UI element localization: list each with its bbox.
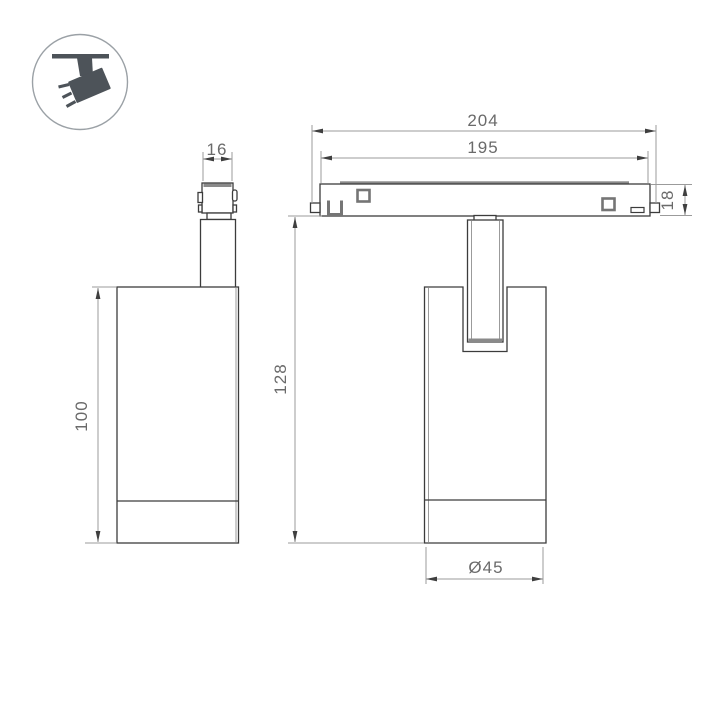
dim-fixture-height: 128 <box>271 216 424 543</box>
front-track-screw-right <box>603 199 615 211</box>
dim-track-width: 195 <box>321 138 648 183</box>
spotlight-side-view <box>117 183 239 543</box>
dim-track-width-label: 195 <box>467 138 498 157</box>
dim-body-height-label: 100 <box>72 400 91 431</box>
dim-body-height: 100 <box>72 287 116 543</box>
front-arm-pivot-cap <box>469 339 503 344</box>
front-track-left-tab <box>311 203 321 213</box>
dim-adapter-width: 16 <box>203 140 232 181</box>
side-adapter-right-pin <box>233 205 237 212</box>
side-arm <box>201 220 236 288</box>
side-adapter-left-pin <box>199 205 203 212</box>
dim-adapter-width-label: 16 <box>207 140 228 159</box>
icon-ceiling-bar <box>52 54 109 59</box>
technical-drawing: 16 100 204 195 18 <box>0 0 720 720</box>
side-adapter-right-knob <box>233 190 238 201</box>
technical-drawing-page: 16 100 204 195 18 <box>0 0 720 720</box>
front-track-screw-left <box>358 190 370 202</box>
side-lamp-body <box>117 287 239 543</box>
front-arm <box>468 220 504 342</box>
dim-fixture-height-label: 128 <box>271 363 290 394</box>
spotlight-front-view <box>311 181 660 543</box>
front-track-connector-slot <box>631 208 644 213</box>
side-track-adapter <box>202 183 233 213</box>
dim-track-height-label: 18 <box>658 190 677 211</box>
side-neck <box>207 213 231 220</box>
side-adapter-left-latch <box>198 193 203 203</box>
dim-total-width-label: 204 <box>467 111 498 130</box>
ceiling-track-spotlight-icon <box>33 35 128 130</box>
dim-lamp-diameter: Ø45 <box>426 547 543 584</box>
dim-track-height: 18 <box>651 185 692 216</box>
side-adapter-contact-strip <box>204 184 232 188</box>
dim-lamp-diameter-label: Ø45 <box>468 558 503 577</box>
